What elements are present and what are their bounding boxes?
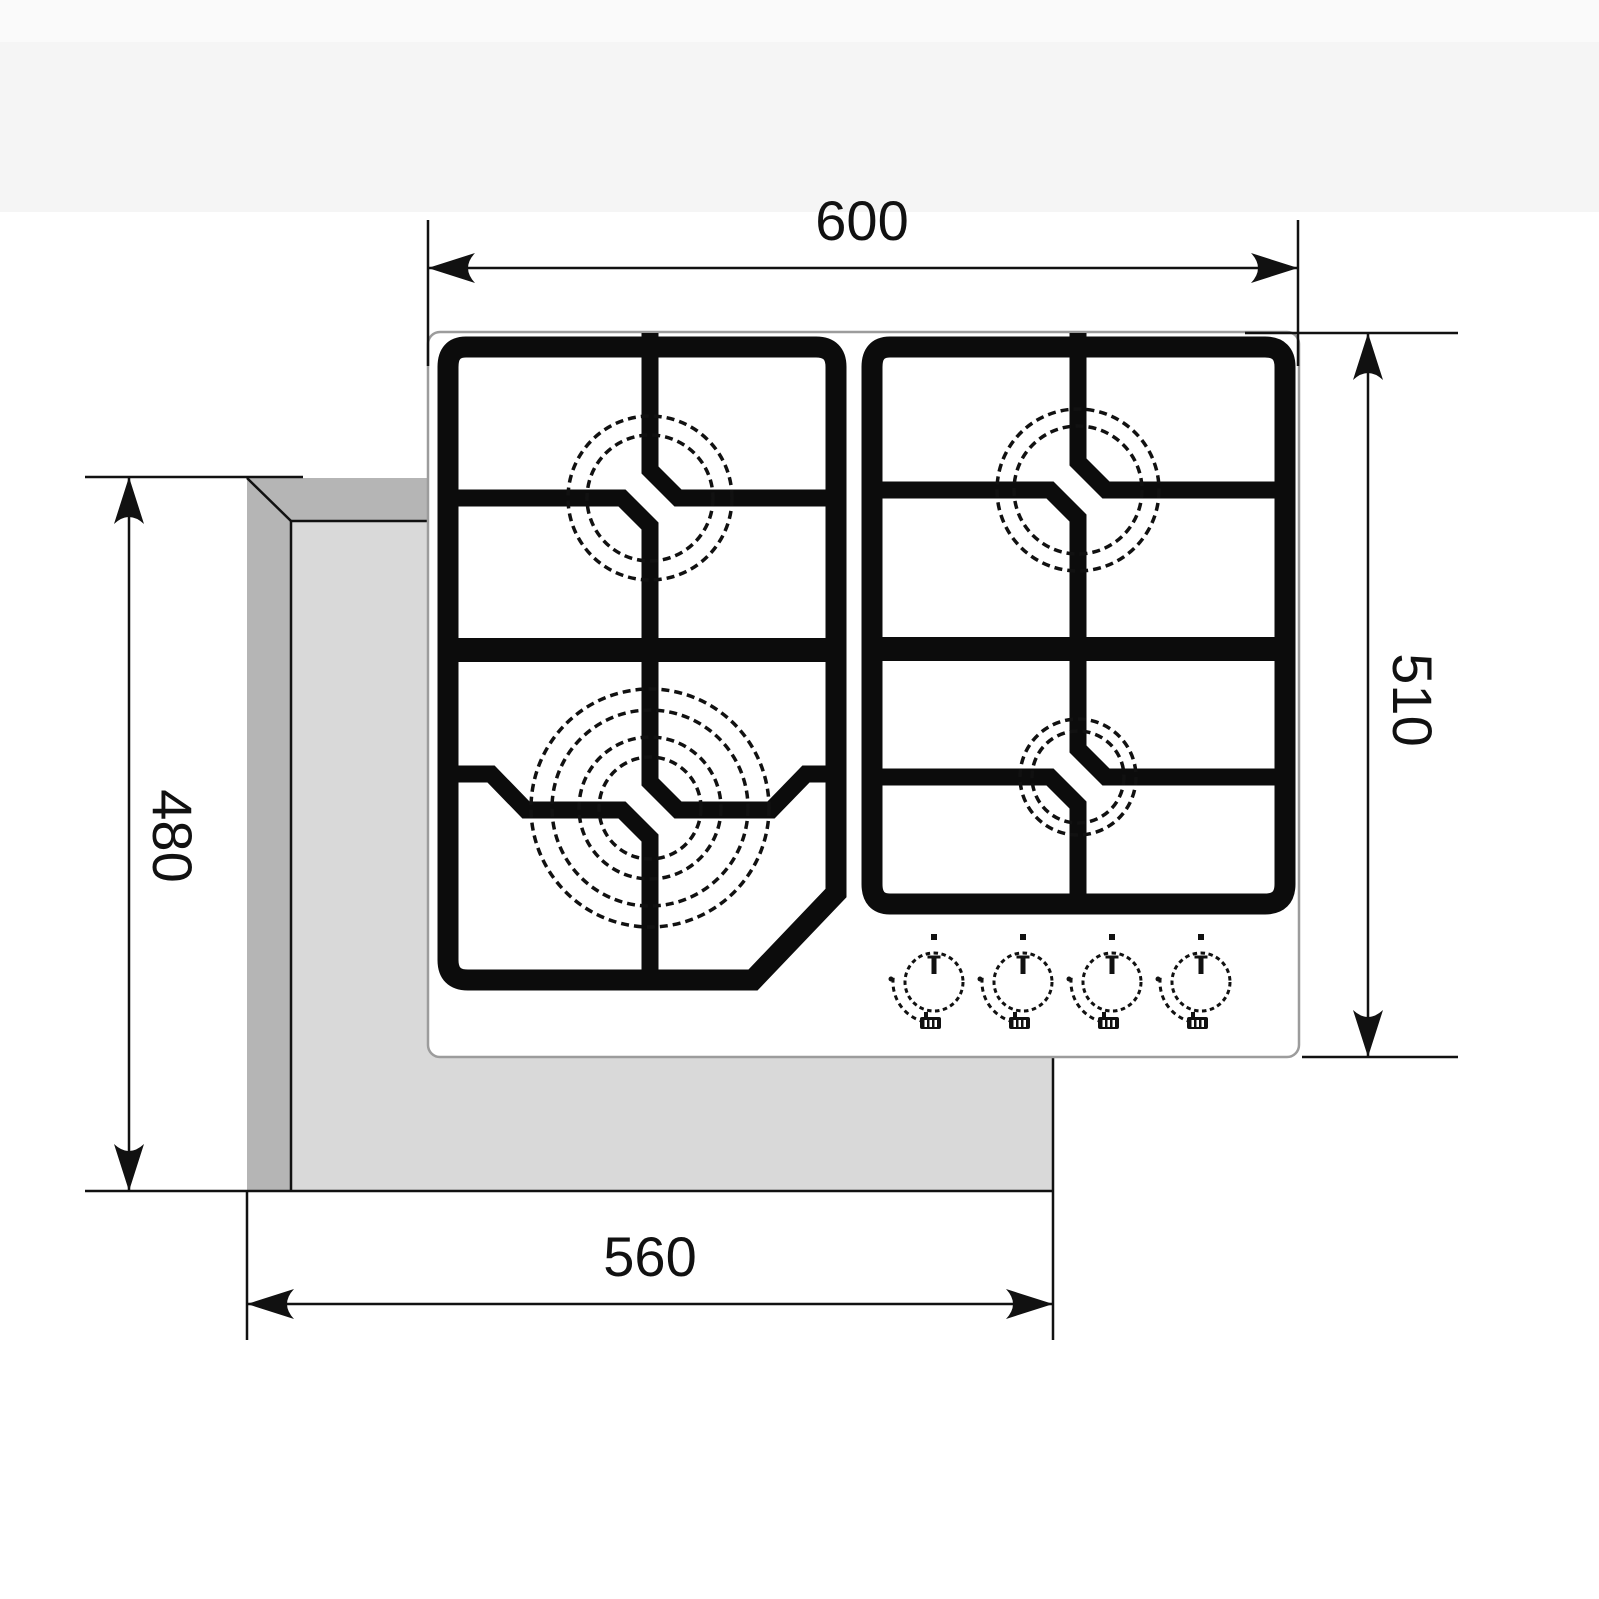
dimension-label-top-width: 600 (815, 189, 908, 252)
knob-off-dot-icon (1109, 934, 1115, 940)
hob-installation-diagram: 600 510 480 560 (0, 0, 1599, 1599)
dimension-label-bottom-width: 560 (603, 1225, 696, 1288)
knob-off-dot-icon (931, 934, 937, 940)
installation-diagram-page: 600 510 480 560 (0, 0, 1599, 1599)
dimension-label-left-height: 480 (141, 789, 204, 882)
background-band-second (0, 42, 1599, 212)
dimension-label-right-height: 510 (1381, 653, 1444, 746)
knob-off-dot-icon (1198, 934, 1204, 940)
background-band-top (0, 0, 1599, 42)
knob-off-dot-icon (1020, 934, 1026, 940)
